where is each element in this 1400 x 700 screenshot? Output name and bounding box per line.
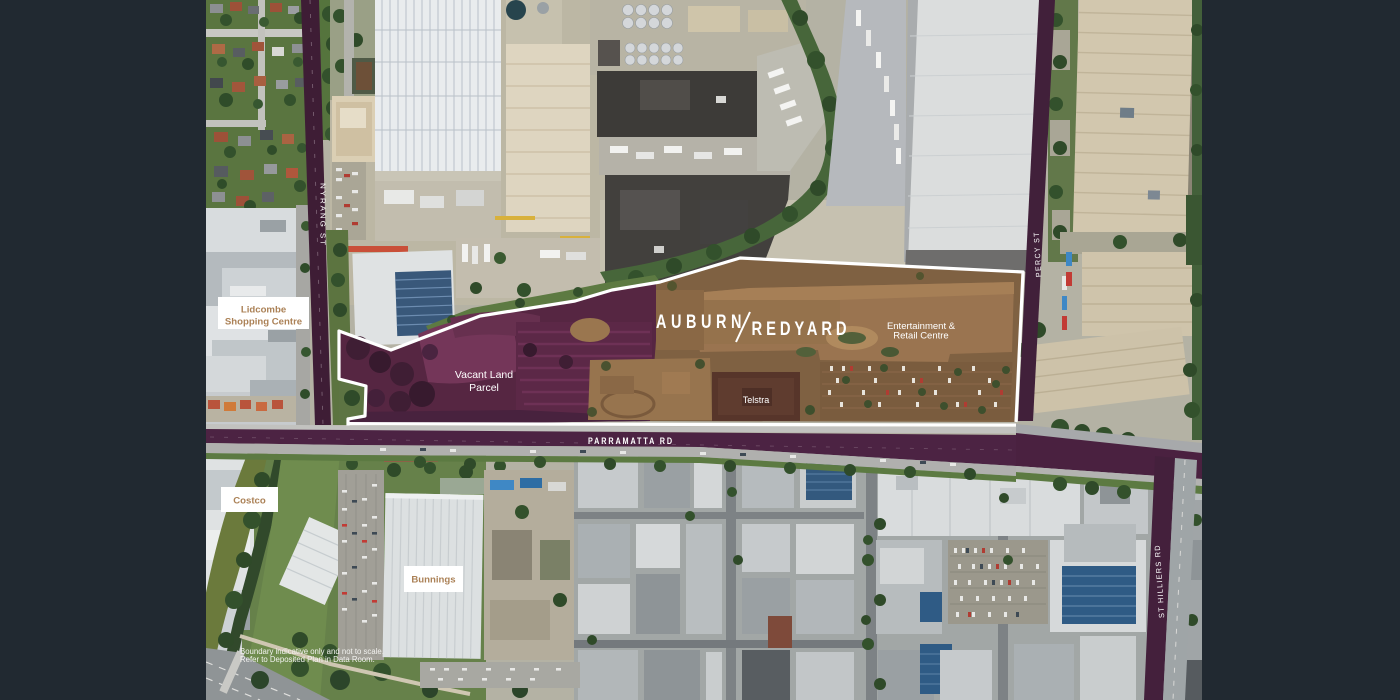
svg-text:Refer to Deposited Plan in Dat: Refer to Deposited Plan in Data Room. [240, 655, 375, 664]
svg-text:NYRANG ST: NYRANG ST [319, 183, 328, 247]
svg-text:REDYARD: REDYARD [752, 319, 851, 340]
svg-text:Telstra: Telstra [743, 395, 770, 405]
svg-text:Costco: Costco [233, 496, 266, 507]
svg-text:Retail Centre: Retail Centre [893, 331, 948, 342]
svg-text:PARRAMATTA RD: PARRAMATTA RD [588, 436, 674, 446]
svg-text:Vacant Land: Vacant Land [455, 369, 513, 381]
svg-text:AUBURN: AUBURN [656, 312, 746, 333]
svg-text:Shopping Centre: Shopping Centre [225, 317, 302, 328]
svg-text:Parcel: Parcel [469, 382, 499, 394]
svg-text:Lidcombe: Lidcombe [241, 305, 286, 316]
svg-text:Bunnings: Bunnings [411, 575, 455, 586]
